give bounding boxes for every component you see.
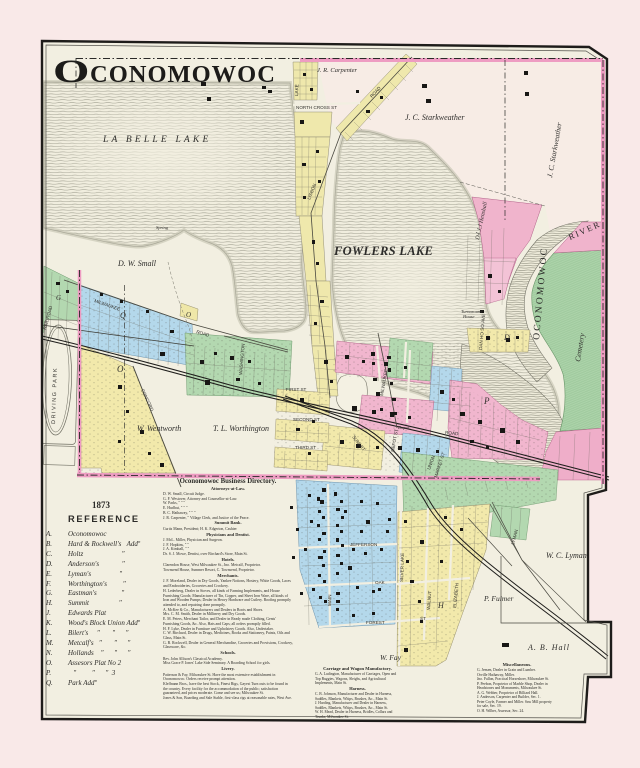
svg-text:D: D (503, 333, 510, 342)
svg-text:J. C. Starkweather: J. C. Starkweather (405, 113, 465, 122)
svg-text:P: P (483, 396, 490, 406)
svg-text:O: O (117, 364, 124, 374)
svg-text:O: O (53, 53, 89, 90)
svg-text:J. R. Carpenter: J. R. Carpenter (317, 67, 358, 74)
svg-text:FOREST: FOREST (366, 620, 385, 625)
svg-text:G: G (56, 294, 61, 302)
svg-text:CONOMOWOC: CONOMOWOC (90, 61, 276, 88)
svg-text:JEFFERSON: JEFFERSON (350, 542, 377, 547)
svg-text:NORTH CROSS ST: NORTH CROSS ST (296, 105, 337, 110)
svg-text:A. B. Hall: A. B. Hall (527, 643, 570, 652)
svg-text:SILVER LAKE: SILVER LAKE (399, 553, 405, 582)
svg-text:MAIN: MAIN (327, 594, 332, 606)
svg-text:LA BELLE LAKE: LA BELLE LAKE (102, 135, 211, 145)
svg-text:Spring: Spring (156, 225, 169, 230)
svg-text:P. Fulmer: P. Fulmer (483, 594, 514, 603)
svg-text:W. Fay: W. Fay (380, 653, 402, 662)
svg-text:W. Wentworth: W. Wentworth (137, 424, 181, 433)
svg-text:LAKE: LAKE (294, 84, 299, 96)
svg-text:T. L. Worthington: T. L. Worthington (213, 424, 269, 433)
svg-text:FOWLERS LAKE: FOWLERS LAKE (333, 244, 433, 258)
svg-text:D. W. Small: D. W. Small (117, 259, 157, 268)
svg-text:Depot: Depot (397, 425, 410, 430)
svg-text:House: House (462, 314, 475, 319)
svg-text:O: O (186, 311, 191, 319)
svg-text:FIRST ST: FIRST ST (286, 387, 307, 392)
svg-text:OAK: OAK (375, 580, 386, 585)
svg-text:W. C. Lyman: W. C. Lyman (546, 551, 587, 560)
svg-text:ST: ST (420, 616, 426, 621)
svg-text:SECOND ST: SECOND ST (293, 417, 320, 422)
svg-text:Q: Q (120, 311, 126, 320)
svg-text:THIRD ST: THIRD ST (295, 445, 316, 450)
